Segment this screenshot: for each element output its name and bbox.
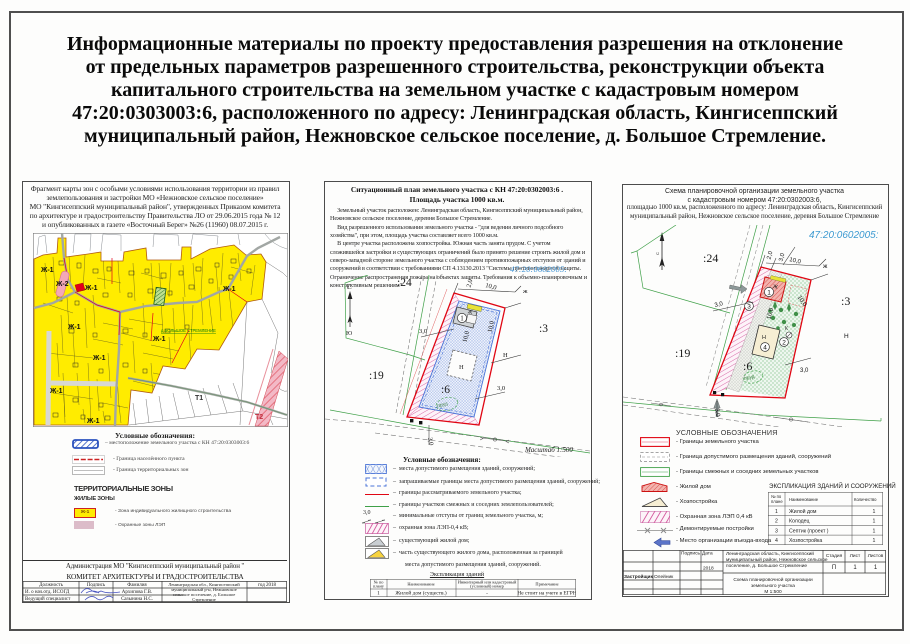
svg-text:Фамилия: Фамилия [127,583,147,588]
svg-text:Хозпостройка: Хозпостройка [789,537,822,544]
svg-text:земельного участка: земельного участка [751,584,795,589]
svg-text:3,0: 3,0 [779,252,787,262]
svg-text:3,0: 3,0 [714,301,724,309]
svg-text:Т1: Т1 [195,395,203,402]
svg-text:плану: плану [373,584,385,589]
svg-text:1: 1 [460,315,464,323]
svg-text:Жилой дом: Жилой дом [789,508,817,515]
svg-text:Ж-1: Ж-1 [222,286,236,293]
svg-text:Ж-1: Ж-1 [40,267,54,274]
svg-text:Т2: Т2 [255,414,263,421]
svg-text::19: :19 [369,370,384,382]
svg-text:2,0: 2,0 [466,279,475,289]
svg-text:Дата: Дата [702,551,713,557]
svg-text:И. о нач.отд. ИСОГД: И. о нач.отд. ИСОГД [25,590,70,595]
svg-text:Н: Н [459,364,464,371]
svg-text:1: 1 [377,591,380,597]
svg-text::3: :3 [539,323,548,335]
svg-text:Ж-2: Ж-2 [55,281,69,288]
svg-text:2: 2 [775,519,778,525]
svg-text:Н: Н [503,352,508,359]
svg-text:3,0: 3,0 [426,437,434,446]
svg-text:2018: 2018 [703,566,714,572]
svg-text:Н: Н [762,335,766,341]
svg-text:47:20:0602005:: 47:20:0602005: [809,230,879,241]
svg-text:Ленинградская область, Кингисе: Ленинградская область, Кингисеппский [726,550,814,557]
svg-text:Архипова Г.В.: Архипова Г.В. [122,590,152,595]
svg-text:С: С [347,283,352,291]
svg-text:муниципальный район, Нежновско: муниципальный район, Нежновское сельское [726,556,828,563]
svg-text:1: 1 [775,509,778,515]
svg-text:Сазынина Н.С.: Сазынина Н.С. [121,597,153,602]
svg-text:поселение, д. Большое Стремлен: поселение, д. Большое Стремление [726,563,807,569]
svg-text:-: - [486,591,488,597]
svg-text:10,0: 10,0 [485,282,498,291]
svg-text:год 2018: год 2018 [258,583,277,588]
svg-text:Наименование: Наименование [407,582,434,587]
svg-text:П: П [832,565,836,571]
svg-text:Жилой дом (существ.): Жилой дом (существ.) [395,590,447,597]
svg-text:Масштаб 1:500: Масштаб 1:500 [524,446,573,454]
svg-text:Стремление: Стремление [192,597,216,602]
svg-text:Септик (проект ): Септик (проект ) [789,528,829,534]
svg-text::6: :6 [441,384,450,396]
svg-text:Листов: Листов [868,553,884,559]
svg-text::3: :3 [841,294,850,308]
svg-text:ж: ж [522,288,528,295]
svg-text:3,0: 3,0 [713,408,720,418]
svg-text:Ж-1: Ж-1 [86,418,100,425]
svg-text::6: :6 [743,359,752,373]
svg-text:Количество: Количество [854,497,877,502]
svg-text:3,0: 3,0 [800,368,809,374]
svg-text::19: :19 [675,346,690,360]
svg-text:Н: Н [844,333,849,340]
svg-text:Ж-1: Ж-1 [92,355,106,362]
svg-text::24: :24 [397,277,412,289]
svg-text:Лист: Лист [850,553,861,559]
svg-text:Ж-1: Ж-1 [152,336,166,343]
svg-text:Стадия: Стадия [826,553,843,559]
svg-text:1: 1 [873,509,876,515]
svg-text:2,0: 2,0 [767,250,775,260]
svg-text:Подпись: Подпись [681,551,700,557]
svg-text:плане: плане [771,499,783,504]
svg-text:3: 3 [775,528,778,534]
svg-text:Наименование: Наименование [789,497,819,502]
svg-text:Ведущий специалист: Ведущий специалист [25,597,71,602]
svg-text:1: 1 [873,538,876,544]
svg-text:2: 2 [782,340,786,347]
svg-text:Ж-1: Ж-1 [67,324,81,331]
svg-text:Застройщик: Застройщик [624,573,653,580]
svg-text:д.БОЛЬШОЕ СТРЕМЛЕНИЕ: д.БОЛЬШОЕ СТРЕМЛЕНИЕ [161,328,216,333]
svg-text:ж: ж [823,263,828,270]
svg-text:Колодец: Колодец [789,519,810,525]
svg-text:(условный) номер: (условный) номер [470,584,504,589]
svg-text:Примечание: Примечание [535,582,558,587]
svg-text:К: К [785,326,788,332]
svg-text:Должность: Должность [39,583,63,588]
svg-text:Ж-1: Ж-1 [84,285,98,292]
svg-text:3: 3 [747,304,751,311]
svg-text:3,0: 3,0 [497,385,505,392]
svg-text:Схема планировочной организаци: Схема планировочной организации [733,576,813,583]
svg-text:C: C [655,252,660,255]
svg-text:1: 1 [767,290,771,297]
svg-text:4: 4 [775,538,778,544]
svg-text:Ю: Ю [346,331,352,337]
svg-text:4: 4 [763,345,767,352]
svg-text:Олейник: Олейник [654,573,674,580]
svg-text:Ж-1: Ж-1 [49,388,63,395]
svg-text::24: :24 [703,251,718,265]
svg-text:М 1:500: М 1:500 [764,589,782,595]
svg-text:1: 1 [874,565,878,571]
svg-text:1: 1 [853,565,857,571]
svg-text:1: 1 [873,519,876,525]
svg-text:Подпись: Подпись [87,583,106,588]
svg-text:3,0: 3,0 [419,328,427,335]
svg-text:1: 1 [873,528,876,534]
svg-text:Не стоит на учете в ЕГРН: Не стоит на учете в ЕГРН [517,591,576,597]
